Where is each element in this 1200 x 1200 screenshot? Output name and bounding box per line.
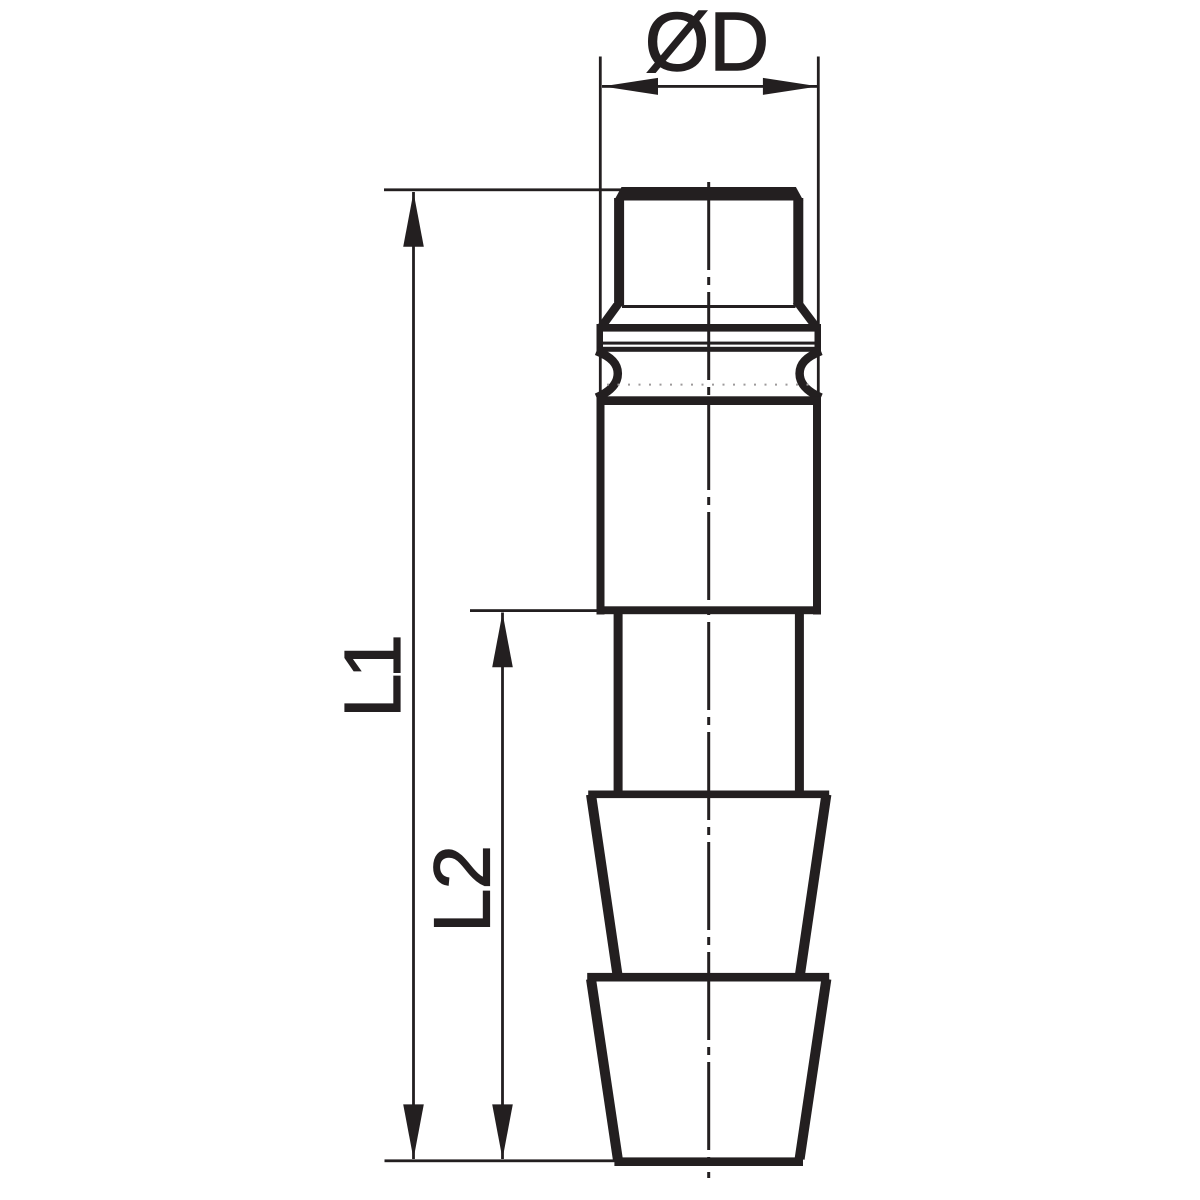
svg-text:L2: L2 <box>418 846 507 933</box>
svg-text:L1: L1 <box>328 638 417 718</box>
svg-text:ØD: ØD <box>645 0 770 88</box>
